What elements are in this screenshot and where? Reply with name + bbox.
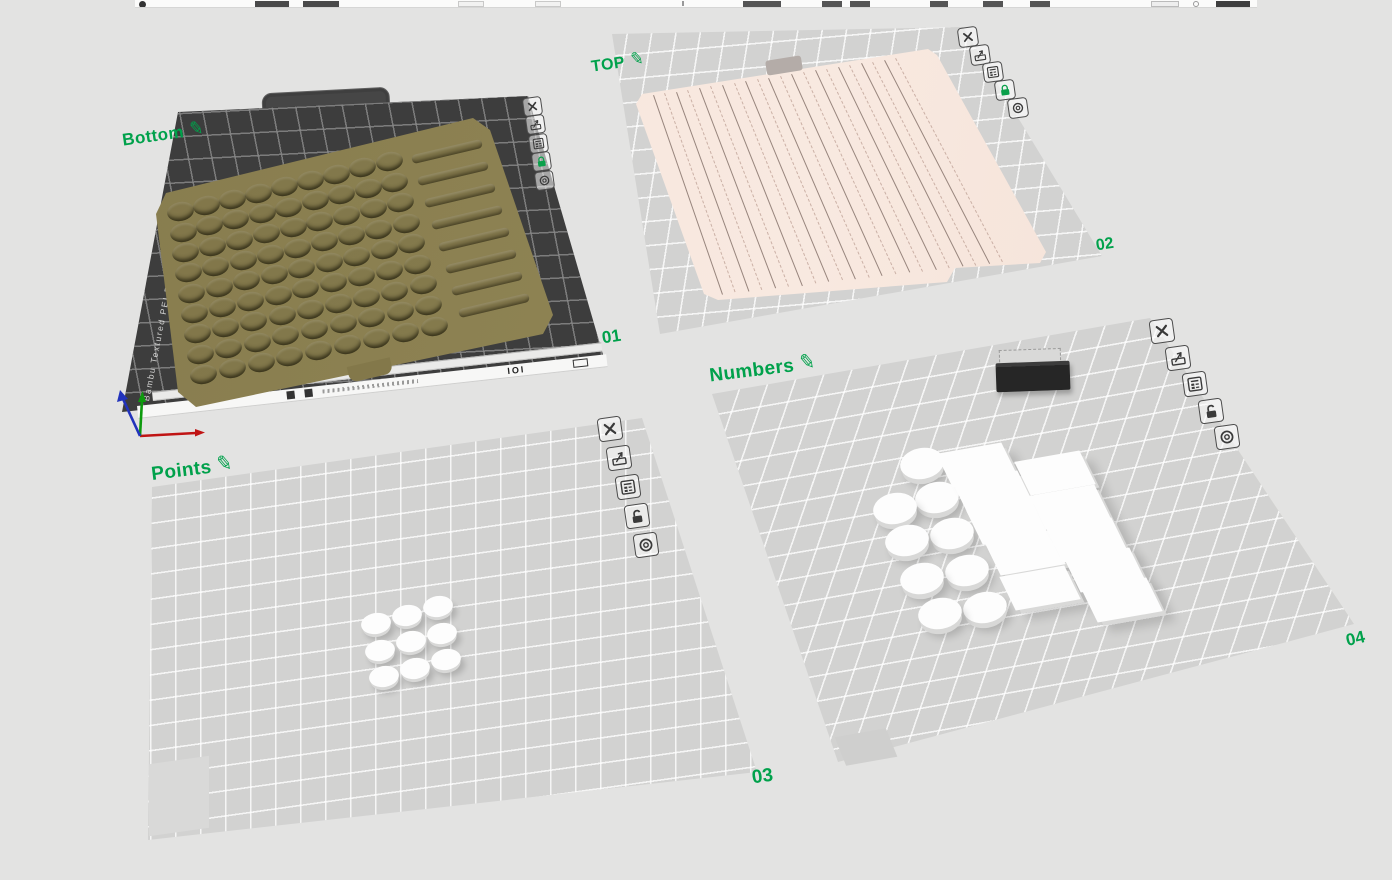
qr-code-icon bbox=[304, 389, 313, 398]
edit-name-icon[interactable]: ✎ bbox=[215, 450, 234, 476]
plate-number-02: 02 bbox=[1095, 235, 1115, 256]
plate-corner-tab bbox=[149, 756, 209, 836]
plate-03-plate-preview-button[interactable] bbox=[605, 444, 632, 471]
toolbar-partial-icon[interactable] bbox=[822, 1, 842, 7]
plate-name-label: Numbers bbox=[708, 355, 795, 386]
plate-03-lock-button[interactable] bbox=[623, 502, 650, 529]
edit-name-icon[interactable]: ✎ bbox=[798, 349, 817, 375]
toolbar-partial-icon[interactable] bbox=[303, 1, 339, 7]
plate-04-lock-button[interactable] bbox=[1197, 397, 1224, 424]
toolbar-partial-icon[interactable] bbox=[1151, 1, 1179, 7]
plate-number-01: 01 bbox=[601, 326, 623, 349]
plate-number-03: 03 bbox=[751, 765, 775, 790]
three-d-viewport[interactable]: Bambu Textured PEI Plate IOI Bottom✎ TOP… bbox=[0, 0, 1392, 880]
plate-03-plate-settings-button[interactable] bbox=[614, 473, 641, 500]
plate-number-04: 04 bbox=[1344, 627, 1367, 651]
plate-edge-marks: IOI bbox=[507, 364, 526, 376]
toolbar-partial-icon[interactable] bbox=[139, 1, 146, 8]
toolbar-partial-icon[interactable] bbox=[850, 1, 870, 7]
toolbar-partial-icon[interactable] bbox=[1193, 1, 1199, 7]
qr-code-icon bbox=[286, 391, 295, 400]
plate-04-plate-settings-button[interactable] bbox=[1181, 371, 1208, 398]
toolbar-partial-icon[interactable] bbox=[255, 1, 289, 7]
toolbar-partial-icon[interactable] bbox=[535, 1, 561, 7]
toolbar-partial-icon[interactable] bbox=[743, 1, 781, 7]
toolbar-partial-icon[interactable] bbox=[1216, 1, 1250, 7]
edit-name-icon[interactable]: ✎ bbox=[188, 118, 205, 140]
plate-01-plate-preview-button[interactable] bbox=[524, 114, 545, 135]
plate-04-plate-config-button[interactable] bbox=[1214, 424, 1241, 451]
top-toolbar[interactable] bbox=[135, 0, 1257, 8]
plate-edge-mark-box bbox=[573, 358, 589, 368]
plate-03-close-button[interactable] bbox=[596, 415, 623, 442]
plate-name-label: TOP bbox=[590, 54, 626, 76]
plate-04-plate-preview-button[interactable] bbox=[1165, 344, 1192, 371]
toolbar-partial-icon[interactable] bbox=[458, 1, 484, 7]
plate-04-close-button[interactable] bbox=[1148, 317, 1175, 344]
plate-03-plate-config-button[interactable] bbox=[632, 531, 659, 558]
edit-name-icon[interactable]: ✎ bbox=[629, 48, 645, 70]
toolbar-partial-icon[interactable] bbox=[930, 1, 948, 7]
axis-indicator bbox=[108, 386, 208, 448]
dark-box-model[interactable] bbox=[996, 361, 1071, 393]
toolbar-partial-icon[interactable] bbox=[983, 1, 1003, 7]
toolbar-partial-icon[interactable] bbox=[1030, 1, 1050, 7]
toolbar-partial-icon bbox=[682, 1, 684, 6]
plate-01-plate-config-button[interactable] bbox=[533, 170, 554, 191]
plate-02-plate-config-button[interactable] bbox=[1006, 97, 1029, 120]
